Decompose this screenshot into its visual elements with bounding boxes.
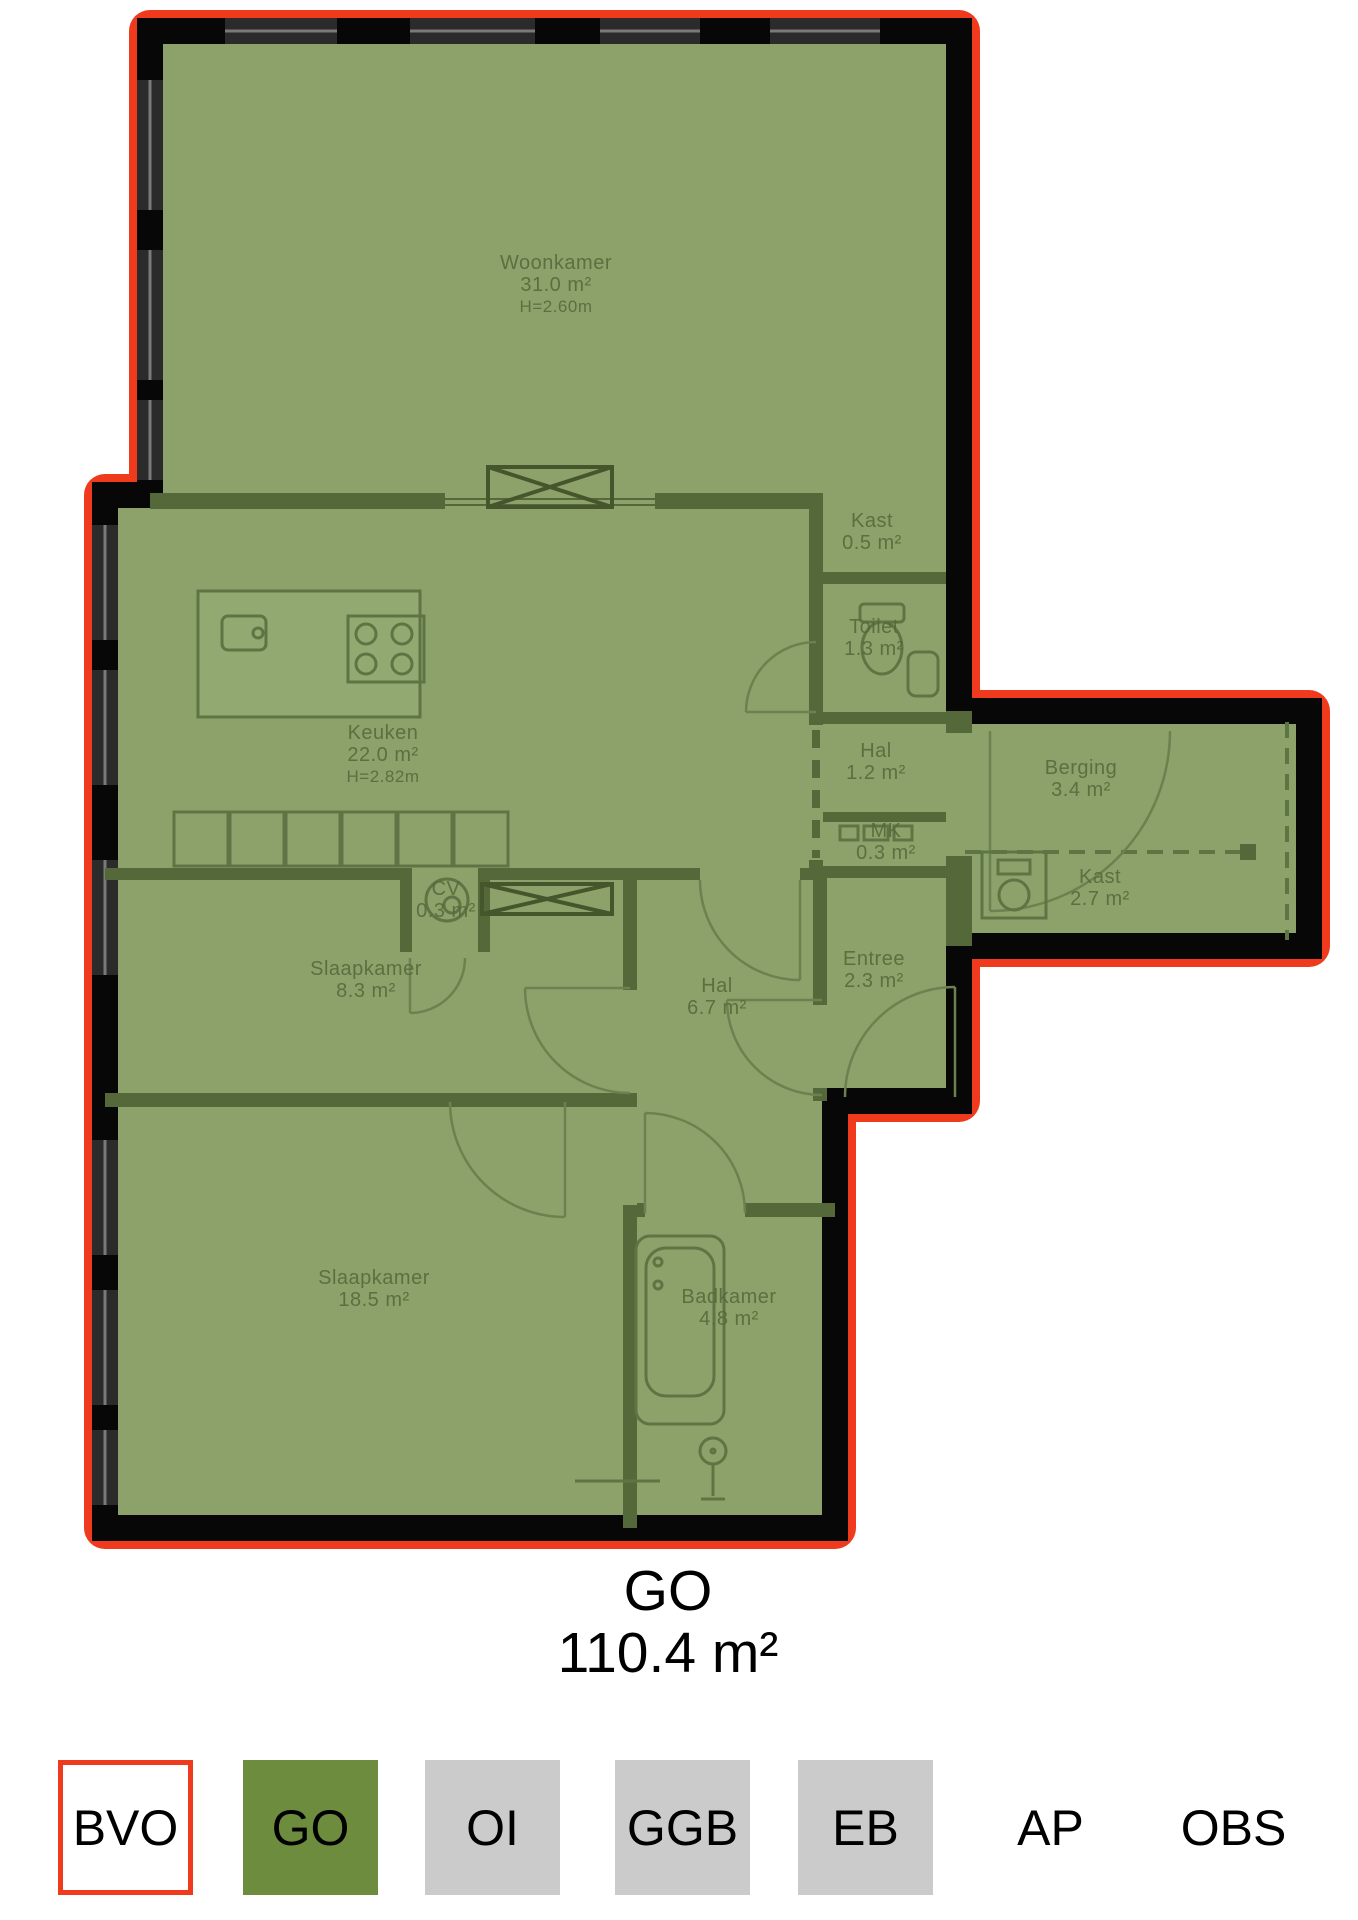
room-area: 0.3 m² xyxy=(856,842,916,864)
room-label-mk: MK 0.3 m² xyxy=(856,820,916,864)
room-area: 0.5 m² xyxy=(842,532,902,554)
go-total-caption: GO 110.4 m² xyxy=(0,1560,1336,1684)
room-name: Slaapkamer xyxy=(310,958,422,980)
room-label-cv: CV 0.3 m² xyxy=(416,878,476,922)
room-height: H=2.60m xyxy=(500,296,612,318)
room-area: 0.3 m² xyxy=(416,900,476,922)
room-label-hal-12: Hal 1.2 m² xyxy=(846,740,906,784)
legend-item-oi: OI xyxy=(425,1760,560,1895)
legend-label: GGB xyxy=(627,1799,738,1857)
room-label-slaapkamer-83: Slaapkamer 8.3 m² xyxy=(310,958,422,1002)
room-area: 18.5 m² xyxy=(318,1289,430,1311)
room-label-kast-27: Kast 2.7 m² xyxy=(1070,866,1130,910)
legend-item-bvo: BVO xyxy=(58,1760,193,1895)
legend-item-ggb: GGB xyxy=(615,1760,750,1895)
legend-label: AP xyxy=(1017,1799,1084,1857)
room-area: 1.3 m² xyxy=(844,638,904,660)
room-area: 2.7 m² xyxy=(1070,888,1130,910)
room-name: Kast xyxy=(1070,866,1130,888)
room-label-badkamer: Badkamer 4.8 m² xyxy=(681,1286,776,1330)
room-name: Keuken xyxy=(347,722,420,744)
legend-label: OBS xyxy=(1181,1799,1287,1857)
room-name: MK xyxy=(856,820,916,842)
room-label-entree: Entree 2.3 m² xyxy=(843,948,905,992)
room-label-slaapkamer-185: Slaapkamer 18.5 m² xyxy=(318,1267,430,1311)
legend-item-ap: AP xyxy=(983,1760,1118,1895)
floorplan-drawing xyxy=(0,0,1358,1560)
legend-label: OI xyxy=(466,1799,519,1857)
room-label-keuken: Keuken 22.0 m² H=2.82m xyxy=(347,722,420,788)
room-area: 6.7 m² xyxy=(687,997,747,1019)
room-height: H=2.82m xyxy=(347,766,420,788)
room-area: 1.2 m² xyxy=(846,762,906,784)
room-name: Kast xyxy=(842,510,902,532)
legend-label: BVO xyxy=(73,1799,179,1857)
room-label-toilet: Toilet 1.3 m² xyxy=(844,616,904,660)
room-area: 4.8 m² xyxy=(681,1308,776,1330)
floorplan: Woonkamer 31.0 m² H=2.60m Keuken 22.0 m²… xyxy=(0,0,1358,1560)
room-label-hal-67: Hal 6.7 m² xyxy=(687,975,747,1019)
room-label-kast-05: Kast 0.5 m² xyxy=(842,510,902,554)
room-name: Slaapkamer xyxy=(318,1267,430,1289)
room-area: 2.3 m² xyxy=(843,970,905,992)
room-name: Badkamer xyxy=(681,1286,776,1308)
go-total-label: GO xyxy=(0,1560,1336,1622)
room-name: Hal xyxy=(846,740,906,762)
room-area: 22.0 m² xyxy=(347,744,420,766)
room-label-berging: Berging 3.4 m² xyxy=(1045,757,1117,801)
legend-item-go: GO xyxy=(243,1760,378,1895)
legend-item-eb: EB xyxy=(798,1760,933,1895)
legend-item-obs: OBS xyxy=(1166,1760,1301,1895)
legend-label: GO xyxy=(272,1799,350,1857)
go-total-area: 110.4 m² xyxy=(0,1622,1336,1684)
legend-label: EB xyxy=(832,1799,899,1857)
room-name: Hal xyxy=(687,975,747,997)
room-area: 31.0 m² xyxy=(500,274,612,296)
room-area: 8.3 m² xyxy=(310,980,422,1002)
room-name: Entree xyxy=(843,948,905,970)
room-name: CV xyxy=(416,878,476,900)
room-area: 3.4 m² xyxy=(1045,779,1117,801)
room-name: Berging xyxy=(1045,757,1117,779)
room-name: Woonkamer xyxy=(500,252,612,274)
kitchen-island xyxy=(198,591,420,717)
room-name: Toilet xyxy=(844,616,904,638)
room-label-woonkamer: Woonkamer 31.0 m² H=2.60m xyxy=(500,252,612,318)
